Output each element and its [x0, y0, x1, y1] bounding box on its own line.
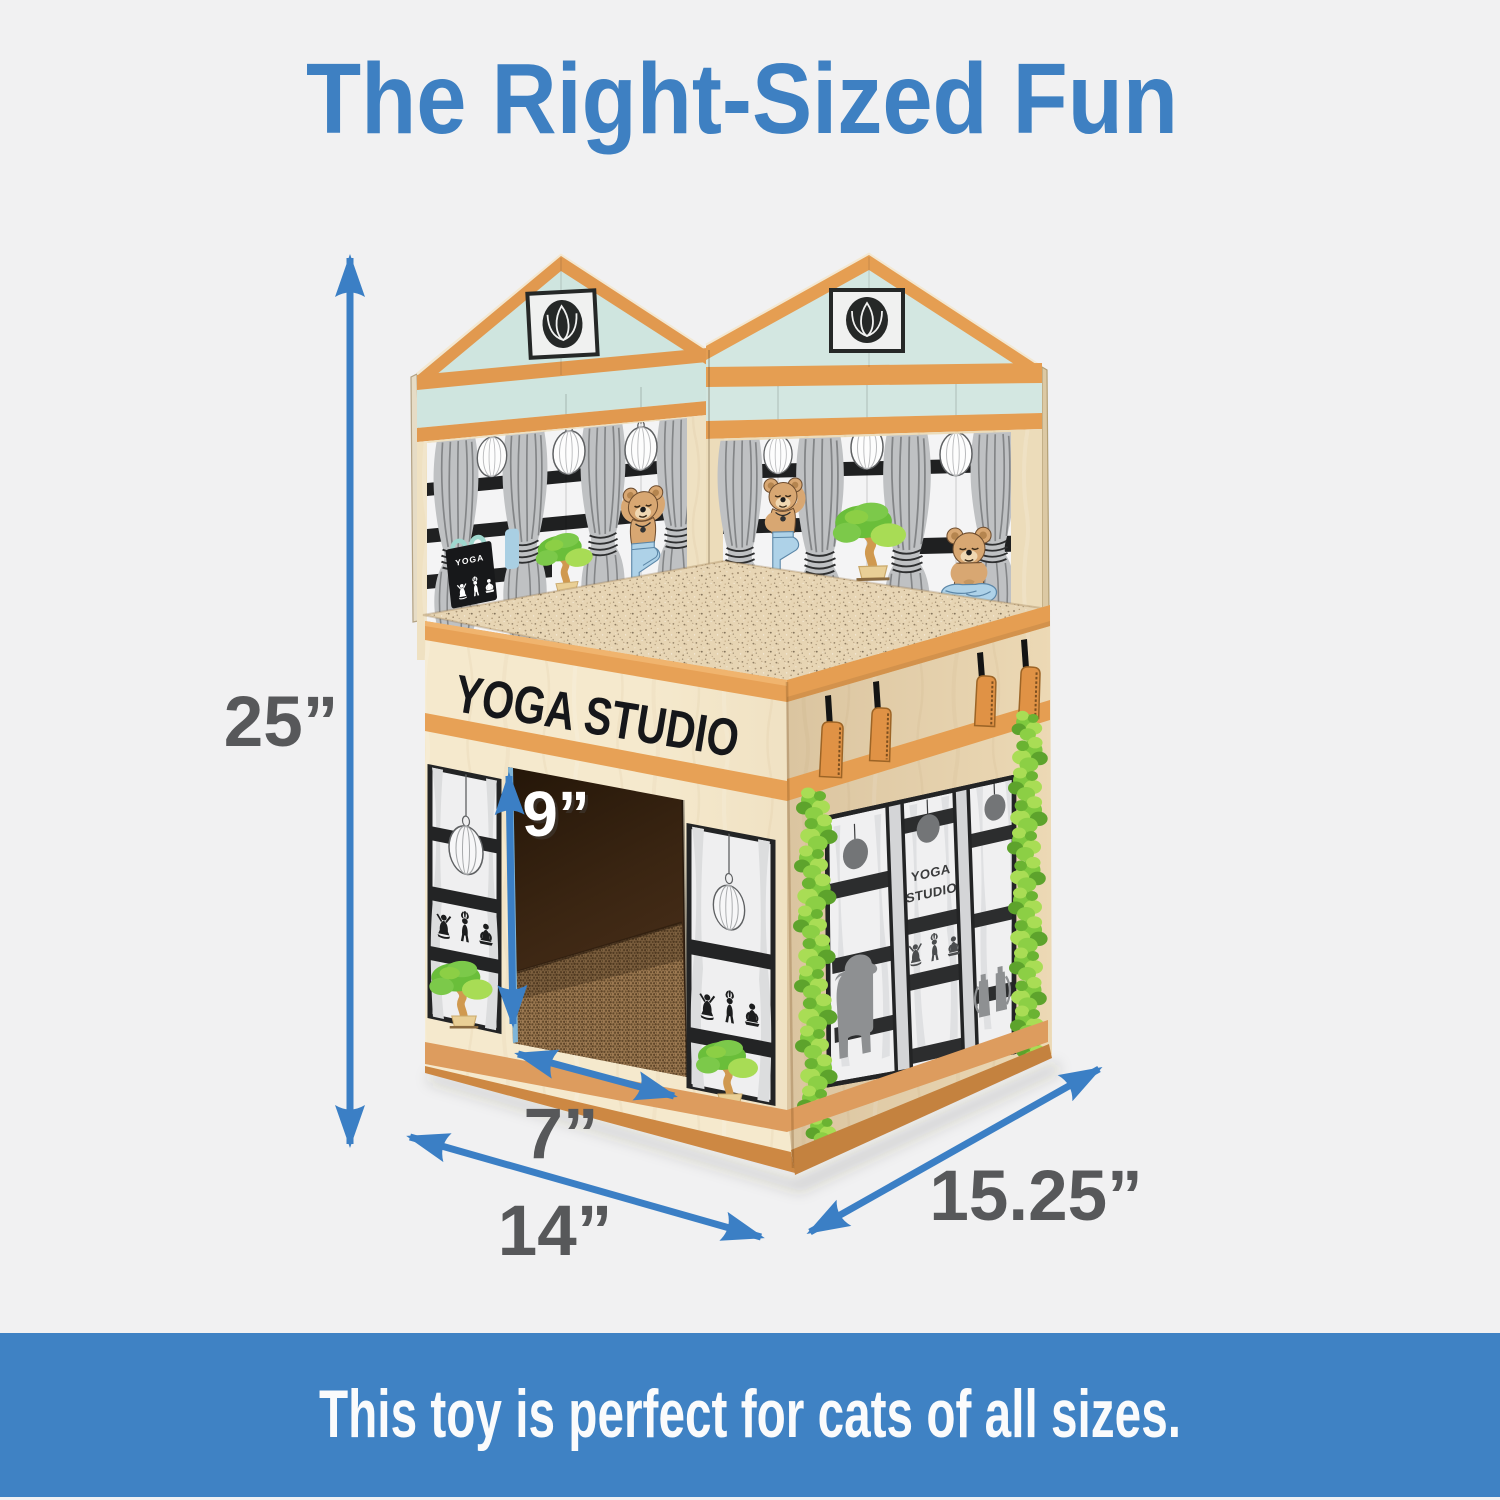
svg-text:15.25”: 15.25” — [929, 1157, 1142, 1236]
svg-text:9”: 9” — [522, 778, 590, 850]
svg-text:25”: 25” — [224, 683, 338, 762]
svg-text:14”: 14” — [498, 1192, 612, 1271]
svg-text:The Right-Sized Fun: The Right-Sized Fun — [306, 43, 1178, 155]
svg-text:7”: 7” — [524, 1095, 599, 1174]
svg-text:This toy is perfect for cats o: This toy is perfect for cats of all size… — [319, 1376, 1181, 1452]
